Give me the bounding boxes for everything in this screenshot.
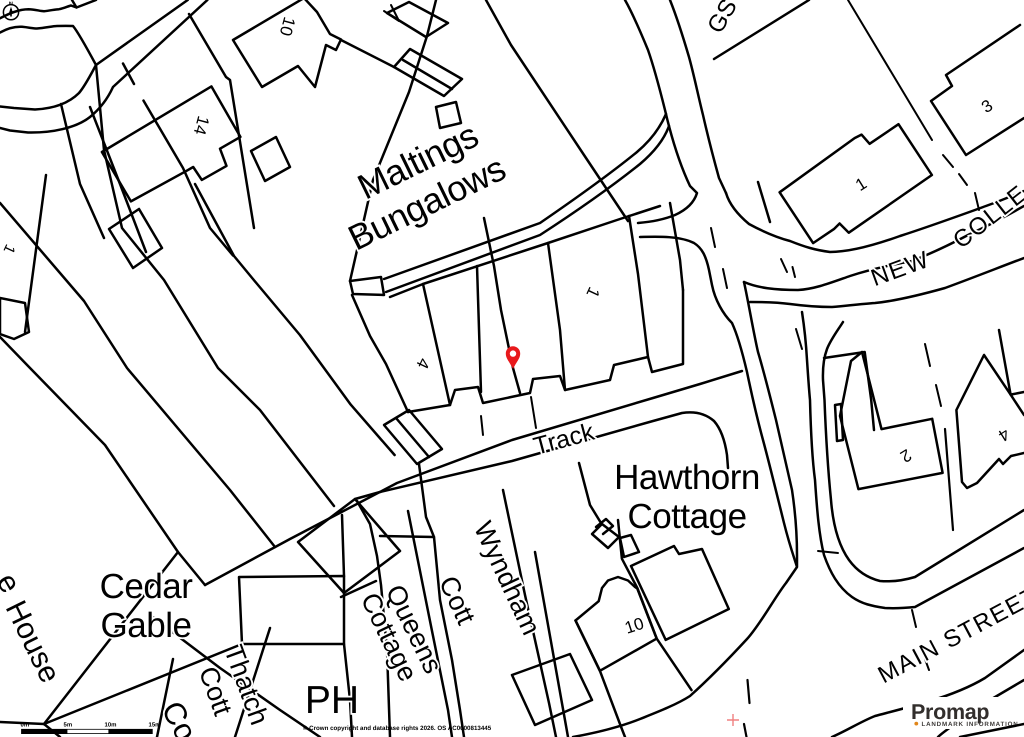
svg-text:Cottage: Cottage bbox=[627, 497, 746, 536]
svg-text:15m: 15m bbox=[149, 722, 161, 729]
svg-text:N: N bbox=[9, 2, 13, 8]
svg-text:0m: 0m bbox=[21, 722, 30, 729]
svg-text:© Crown copyright and database: © Crown copyright and database rights 20… bbox=[303, 725, 492, 732]
svg-text:PH: PH bbox=[305, 679, 359, 722]
svg-text:Hawthorn: Hawthorn bbox=[614, 458, 760, 497]
svg-text:Cedar: Cedar bbox=[100, 567, 194, 606]
svg-text:5m: 5m bbox=[64, 722, 73, 729]
svg-text:10m: 10m bbox=[105, 722, 117, 729]
svg-text:Gable: Gable bbox=[101, 606, 192, 645]
